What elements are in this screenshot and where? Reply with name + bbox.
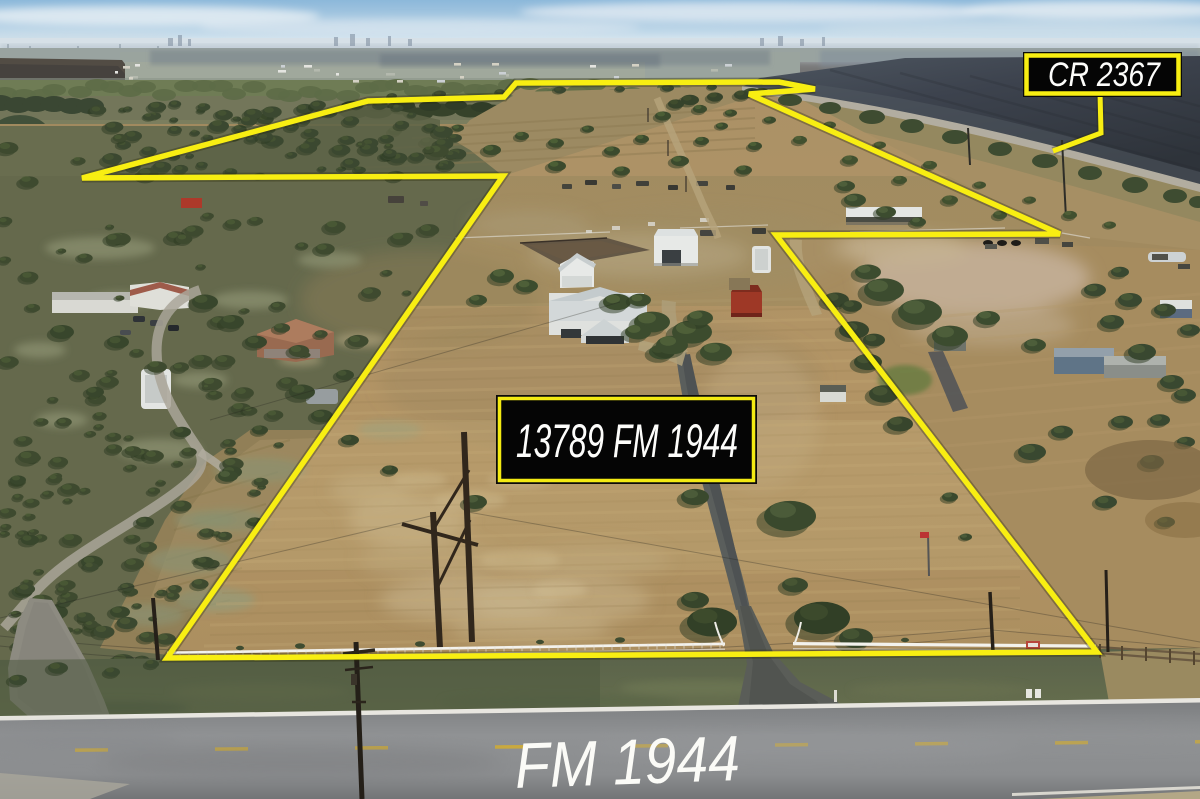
svg-text:FM 1944: FM 1944	[514, 722, 741, 799]
svg-text:13789 FM 1944: 13789 FM 1944	[516, 414, 738, 467]
svg-text:CR 2367: CR 2367	[1048, 56, 1161, 94]
